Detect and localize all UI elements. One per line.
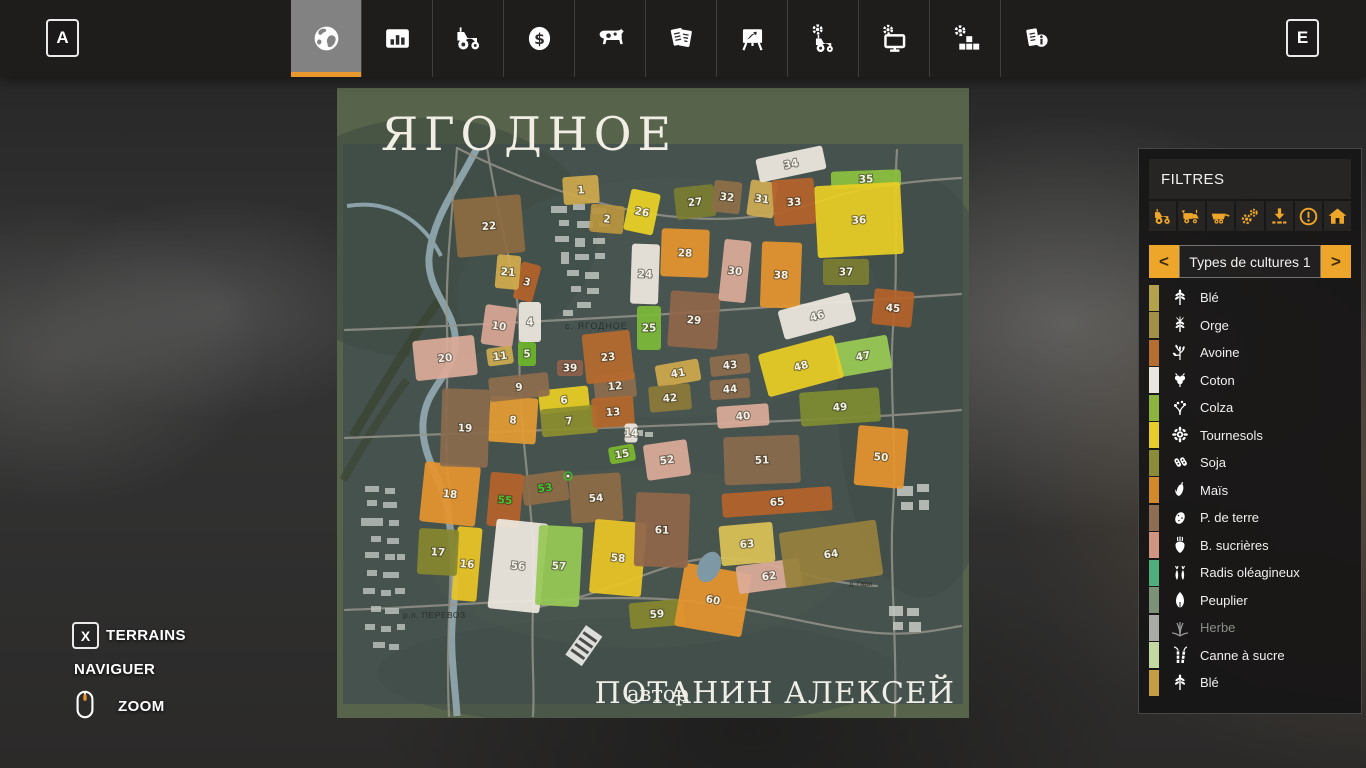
crop-filter-sugarcane-13[interactable]: Canne à sucre [1149, 642, 1351, 670]
svg-text:15: 15 [614, 447, 630, 461]
svg-text:38: 38 [773, 269, 788, 282]
svg-text:13: 13 [605, 406, 620, 419]
field-19[interactable]: 19 [440, 388, 491, 468]
next-category-button[interactable]: > [1321, 245, 1351, 278]
field-44[interactable]: 44 [709, 378, 750, 401]
field-38[interactable]: 38 [760, 241, 802, 308]
crop-label: Tournesols [1200, 428, 1263, 443]
svg-text:6: 6 [560, 394, 569, 407]
field-50[interactable]: 50 [853, 425, 908, 489]
svg-text:36: 36 [851, 214, 866, 227]
svg-text:47: 47 [855, 349, 871, 363]
crop-color-swatch [1149, 312, 1159, 338]
field-4[interactable]: 4 [519, 302, 541, 342]
svg-text:56: 56 [510, 560, 526, 573]
crop-color-swatch [1149, 450, 1159, 476]
svg-text:37: 37 [839, 267, 854, 279]
map-title: ЯГОДНОЕ [381, 107, 677, 161]
tractor-icon [1152, 206, 1173, 227]
field-5[interactable]: 5 [518, 342, 536, 366]
soy-icon [1168, 453, 1192, 473]
svg-text:63: 63 [739, 538, 755, 551]
field-25[interactable]: 25 [637, 306, 661, 350]
svg-text:57: 57 [551, 560, 566, 573]
svg-text:8: 8 [509, 414, 517, 426]
field-13[interactable]: 13 [591, 396, 635, 429]
field-52[interactable]: 52 [643, 439, 692, 481]
crop-filter-list: BléOrgeAvoineCotonColzaTournesolsSojaMaï… [1149, 284, 1351, 697]
svg-text:28: 28 [677, 247, 692, 260]
tab-documents-info[interactable] [1000, 0, 1071, 77]
crop-label: Orge [1200, 318, 1229, 333]
canola-icon [1168, 398, 1192, 418]
crop-filter-beet-9[interactable]: B. sucrières [1149, 532, 1351, 560]
filter-category-selector: < Types de cultures 1 > [1149, 245, 1351, 278]
field-14[interactable]: 14 [624, 424, 639, 443]
cotton-icon [1168, 370, 1192, 390]
crop-filter-oat-2[interactable]: Avoine [1149, 339, 1351, 367]
svg-text:18: 18 [442, 488, 458, 501]
field-28[interactable]: 28 [660, 228, 710, 278]
globe-icon [311, 23, 342, 54]
tab-dollar[interactable]: $ [503, 0, 574, 77]
tab-cow[interactable] [574, 0, 645, 77]
gear-blocks-icon [950, 23, 981, 54]
crop-label: Coton [1200, 373, 1235, 388]
crop-label: Avoine [1200, 345, 1240, 360]
crop-color-swatch [1149, 587, 1159, 613]
svg-text:54: 54 [588, 492, 603, 505]
prev-category-button[interactable]: < [1149, 245, 1179, 278]
crop-filter-grass-12[interactable]: Herbe [1149, 614, 1351, 642]
crop-color-swatch [1149, 367, 1159, 393]
crop-label: Maïs [1200, 483, 1228, 498]
bar-chart-icon [382, 23, 413, 54]
crop-filter-potato-8[interactable]: P. de terre [1149, 504, 1351, 532]
crop-label: Blé [1200, 290, 1219, 305]
wheat-icon [1168, 288, 1192, 308]
svg-text:$: $ [534, 30, 545, 48]
crop-color-swatch [1149, 340, 1159, 366]
crop-color-swatch [1149, 505, 1159, 531]
tractor-gear-icon [808, 23, 839, 54]
field-39[interactable]: 39 [557, 360, 583, 376]
crop-filter-radish-10[interactable]: Radis oléagineux [1149, 559, 1351, 587]
field-2[interactable]: 2 [589, 204, 625, 235]
svg-text:59: 59 [649, 608, 665, 621]
poplar-icon [1168, 590, 1192, 610]
documents-icon [666, 23, 697, 54]
svg-text:65: 65 [769, 496, 784, 509]
svg-text:24: 24 [637, 268, 652, 281]
svg-text:49: 49 [832, 401, 847, 414]
svg-text:4: 4 [526, 317, 533, 329]
navigate-label: NAVIGUER [74, 661, 155, 678]
svg-text:5: 5 [523, 349, 530, 361]
svg-text:20: 20 [437, 352, 453, 365]
field-1[interactable]: 1 [562, 175, 600, 205]
filter-toggle-warning[interactable] [1295, 201, 1322, 231]
crop-label: Peuplier [1200, 593, 1248, 608]
crop-label: Canne à sucre [1200, 648, 1285, 663]
field-20[interactable]: 20 [412, 335, 478, 381]
svg-text:19: 19 [457, 422, 472, 435]
svg-text:45: 45 [885, 302, 901, 315]
tab-monitor-gear[interactable] [858, 0, 929, 77]
svg-text:30: 30 [727, 265, 743, 278]
field-22[interactable]: 22 [453, 194, 526, 258]
top-menu-bar: A $ E [0, 0, 1366, 77]
radish-icon [1168, 563, 1192, 583]
field-33[interactable]: 33 [771, 178, 816, 227]
svg-text:22: 22 [481, 220, 497, 233]
svg-text:64: 64 [823, 548, 839, 562]
crop-filter-sunflower-5[interactable]: Tournesols [1149, 422, 1351, 450]
svg-text:33: 33 [786, 196, 801, 209]
dollar-icon: $ [524, 23, 555, 54]
svg-text:23: 23 [600, 351, 616, 364]
trailer-icon [1210, 206, 1231, 227]
field-11[interactable]: 11 [486, 345, 514, 366]
filters-panel: FILTRES < Types de cultures 1 > BléOrgeA… [1138, 148, 1362, 714]
hamlet-label: д. Гари [849, 581, 872, 588]
crop-color-swatch [1149, 560, 1159, 586]
svg-text:52: 52 [659, 454, 675, 468]
svg-text:14: 14 [624, 428, 639, 440]
svg-text:16: 16 [459, 558, 475, 571]
svg-text:60: 60 [705, 593, 721, 607]
crop-color-swatch [1149, 477, 1159, 503]
map-view[interactable]: 1234567891011121314151617181920212223242… [337, 88, 969, 718]
svg-text:25: 25 [642, 323, 657, 335]
svg-text:51: 51 [755, 454, 770, 467]
crop-label: Colza [1200, 400, 1233, 415]
field-23[interactable]: 23 [582, 330, 635, 385]
svg-text:61: 61 [654, 524, 669, 537]
crop-filter-barley-1[interactable]: Orge [1149, 312, 1351, 340]
field-37[interactable]: 37 [823, 259, 869, 285]
monitor-gear-icon [879, 23, 910, 54]
field-54[interactable]: 54 [568, 472, 623, 524]
field-10[interactable]: 10 [480, 304, 517, 348]
field-36[interactable]: 36 [814, 182, 904, 258]
crop-filter-poplar-11[interactable]: Peuplier [1149, 587, 1351, 615]
svg-text:2: 2 [603, 213, 611, 226]
key-hint-prev-menu: A [46, 19, 79, 57]
crop-color-swatch [1149, 642, 1159, 668]
tab-strip: $ [291, 0, 1071, 77]
tab-tractor-gear[interactable] [787, 0, 858, 77]
potato-icon [1168, 508, 1192, 528]
filter-toggle-harvester[interactable] [1178, 201, 1205, 231]
tab-globe[interactable] [291, 0, 361, 77]
field-53[interactable]: 53 [520, 470, 570, 506]
crop-filter-canola-4[interactable]: Colza [1149, 394, 1351, 422]
field-17[interactable]: 17 [417, 528, 459, 576]
svg-text:50: 50 [873, 451, 889, 464]
svg-text:41: 41 [670, 366, 686, 380]
filter-toggle-trailer[interactable] [1207, 201, 1234, 231]
svg-text:32: 32 [719, 191, 735, 204]
crop-color-swatch [1149, 395, 1159, 421]
filter-toggle-gears[interactable] [1236, 201, 1263, 231]
oat-icon [1168, 343, 1192, 363]
filter-toggle-unload[interactable] [1266, 201, 1293, 231]
crop-filter-soy-6[interactable]: Soja [1149, 449, 1351, 477]
author-name: ПОТАНИН АЛЕКСЕЙ [595, 674, 955, 711]
field-24[interactable]: 24 [630, 244, 660, 305]
tab-tractor[interactable] [432, 0, 503, 77]
field-29[interactable]: 29 [667, 290, 721, 349]
filter-toggle-house[interactable] [1324, 201, 1351, 231]
terrains-label: TERRAINS [106, 627, 186, 644]
category-label: Types de cultures 1 [1179, 245, 1321, 278]
svg-text:39: 39 [563, 363, 578, 375]
crop-color-swatch [1149, 615, 1159, 641]
crop-label: Soja [1200, 455, 1226, 470]
crop-label: Radis oléagineux [1200, 565, 1300, 580]
field-18[interactable]: 18 [419, 461, 481, 527]
field-27[interactable]: 27 [673, 184, 716, 220]
crop-label: P. de terre [1200, 510, 1259, 525]
crop-filter-wheat-0[interactable]: Blé [1149, 284, 1351, 312]
filters-title: FILTRES [1149, 159, 1351, 199]
documents-info-icon [1021, 23, 1052, 54]
svg-text:21: 21 [500, 266, 516, 279]
svg-text:10: 10 [491, 320, 507, 334]
crop-label: Herbe [1200, 620, 1235, 635]
svg-text:44: 44 [722, 383, 737, 396]
wheat-icon [1168, 673, 1192, 693]
tab-gear-blocks[interactable] [929, 0, 1000, 77]
key-hint-next-menu: E [1286, 19, 1319, 57]
filter-toggle-tractor[interactable] [1149, 201, 1176, 231]
svg-text:55: 55 [497, 494, 513, 507]
zoom-label: ZOOM [118, 698, 165, 715]
field-51[interactable]: 51 [723, 435, 801, 486]
svg-text:9: 9 [515, 381, 524, 394]
field-43[interactable]: 43 [709, 353, 751, 377]
field-49[interactable]: 49 [799, 387, 881, 426]
crop-color-swatch [1149, 422, 1159, 448]
gears-icon [1239, 206, 1260, 227]
filter-toggle-row [1149, 201, 1351, 231]
field-45[interactable]: 45 [871, 288, 915, 328]
tab-documents[interactable] [645, 0, 716, 77]
tab-easel[interactable] [716, 0, 787, 77]
svg-text:29: 29 [686, 314, 701, 327]
field-57[interactable]: 57 [535, 525, 583, 607]
crop-color-swatch [1149, 670, 1159, 696]
barley-icon [1168, 315, 1192, 335]
svg-text:31: 31 [754, 193, 770, 207]
field-32[interactable]: 32 [711, 180, 742, 215]
warning-icon [1298, 206, 1319, 227]
field-61[interactable]: 61 [634, 492, 691, 568]
crop-label: Blé [1200, 675, 1219, 690]
mouse-scroll-icon [76, 690, 94, 719]
village-label: с. ЯГОДНОЕ [565, 321, 628, 331]
svg-text:7: 7 [565, 415, 573, 428]
easel-icon [737, 23, 768, 54]
crop-label: B. sucrières [1200, 538, 1269, 553]
field-42[interactable]: 42 [648, 383, 692, 413]
crop-filter-wheat-14[interactable]: Blé [1149, 669, 1351, 697]
svg-text:11: 11 [492, 350, 508, 364]
tab-bar-chart[interactable] [361, 0, 432, 77]
key-hint-terrains: X [72, 622, 99, 649]
svg-text:43: 43 [722, 359, 738, 372]
town-label: р.п. ПЕРЕВОЗ [403, 610, 466, 620]
svg-text:53: 53 [537, 482, 553, 496]
crop-filter-cotton-3[interactable]: Coton [1149, 367, 1351, 395]
svg-text:42: 42 [662, 392, 678, 405]
field-7[interactable]: 7 [540, 405, 598, 438]
screen: 1234567891011121314151617181920212223242… [0, 0, 1366, 768]
field-63[interactable]: 63 [718, 522, 775, 567]
field-40[interactable]: 40 [716, 403, 769, 429]
harvester-icon [1181, 206, 1202, 227]
svg-text:1: 1 [577, 184, 585, 196]
svg-text:27: 27 [687, 196, 703, 209]
svg-text:17: 17 [430, 546, 445, 559]
crop-filter-corn-7[interactable]: Maïs [1149, 477, 1351, 505]
tractor-icon [453, 23, 484, 54]
grass-icon [1168, 618, 1192, 638]
crop-color-swatch [1149, 532, 1159, 558]
sunflower-icon [1168, 425, 1192, 445]
cow-icon [595, 23, 626, 54]
sugarcane-icon [1168, 645, 1192, 665]
svg-text:62: 62 [761, 570, 777, 584]
corn-icon [1168, 480, 1192, 500]
crop-color-swatch [1149, 285, 1159, 311]
field-8[interactable]: 8 [487, 395, 538, 444]
svg-text:58: 58 [610, 552, 626, 565]
house-icon [1327, 206, 1348, 227]
svg-text:40: 40 [735, 410, 750, 423]
unload-icon [1269, 206, 1290, 227]
field-21[interactable]: 21 [495, 254, 522, 290]
beet-icon [1168, 535, 1192, 555]
